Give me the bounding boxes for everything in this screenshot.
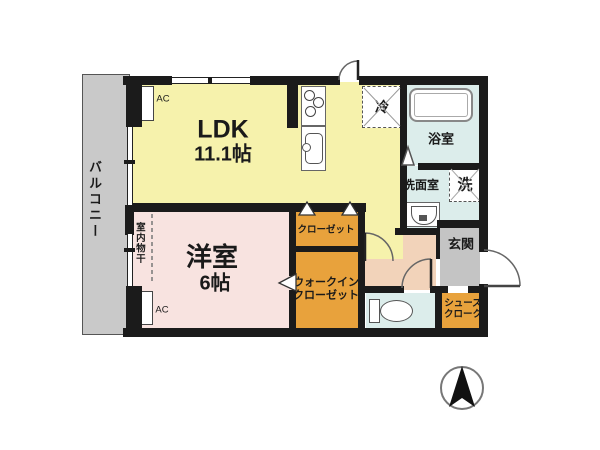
wall-ldk-bedroom: [128, 203, 366, 212]
wall-pillar-ac-top: [126, 80, 142, 127]
entrance-label: 玄関: [448, 238, 474, 253]
ac-unit-top: [141, 86, 154, 121]
ac-top-label: AC: [156, 95, 169, 106]
refrigerator-label: 冷: [374, 99, 390, 115]
window-top-tick: [208, 77, 212, 84]
top-door-swing: [339, 60, 358, 80]
shoes-line1: シューズ: [444, 298, 482, 309]
bath-label: 浴室: [428, 133, 454, 148]
toilet-icon: [369, 297, 417, 325]
wall-washroom-hall: [395, 228, 437, 235]
sink-icon: [301, 126, 326, 171]
bedroom-label: 洋室: [186, 243, 238, 273]
balcony-label: バルコニー: [86, 160, 101, 240]
closet-label: クローゼット: [297, 226, 354, 237]
stove-icon: [301, 86, 326, 126]
wic-line1: ウォークイン: [293, 276, 359, 288]
wall-bath-left: [400, 80, 407, 228]
wall-toilet-shoes: [435, 293, 442, 328]
wall-bath-washroom: [418, 163, 488, 170]
wall-top-right: [359, 76, 488, 85]
floor-plan: バルコニー LDK 11.1帖 洋室 6帖 冷 浴室 洗面室 洗 玄関 クローゼ…: [0, 0, 600, 450]
window-ldk-tick: [124, 160, 135, 164]
wall-bottom: [123, 328, 488, 337]
washbasin-icon: [406, 202, 440, 227]
ldk-label: LDK: [197, 116, 248, 145]
ldk-size-label: 11.1帖: [194, 144, 252, 167]
wall-toilet-top-left: [359, 286, 404, 293]
washer-label: 洗: [456, 176, 473, 193]
window-balcony-ldk: [127, 127, 133, 205]
wall-kitchen-stub: [287, 80, 298, 128]
bathtub-icon: [409, 88, 473, 122]
walk-in-closet-label: ウォークイン クローゼット: [293, 276, 359, 301]
wall-toilet-top-right: [430, 286, 448, 293]
shoes-cloak-label: シューズ クローク: [444, 299, 482, 321]
wall-closet-right: [358, 212, 365, 337]
ac-unit-bottom: [141, 291, 153, 325]
wall-shoes-top-right: [468, 286, 488, 293]
entrance-door-swing: [484, 250, 520, 286]
bedroom-size-label: 6帖: [199, 273, 230, 296]
wall-washroom-entrance: [437, 220, 488, 228]
wall-pillar-ac-bottom: [126, 286, 142, 333]
compass-north-icon: [441, 366, 483, 409]
wall-hall-entrance: [436, 228, 440, 259]
ac-bottom-label: AC: [155, 306, 168, 317]
indoor-drying-label: 室内物干: [133, 222, 144, 264]
washroom-label: 洗面室: [403, 179, 439, 193]
wall-closet-wic: [294, 246, 360, 252]
shoes-line2: クローク: [444, 309, 482, 320]
wall-bedroom-closet-upper: [289, 212, 296, 276]
wic-line2: クローゼット: [293, 289, 359, 301]
